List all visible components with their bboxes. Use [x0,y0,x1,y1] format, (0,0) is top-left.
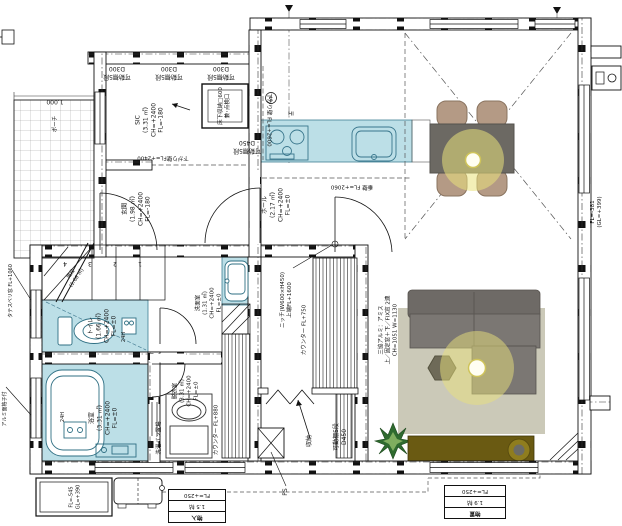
plant-icon [375,423,411,459]
floor-plan: 可動棚5段 D300 可動棚5段 D300 可動棚5段 D300 可動棚5段 D… [0,0,622,526]
window [31,290,41,338]
window [185,463,245,473]
window [31,378,41,438]
area-table-row: 物置 [445,508,505,518]
living-set [375,290,545,464]
ps-shaft [258,428,284,458]
porch-tile-grid [14,92,94,258]
counter-louver [313,258,357,388]
folding-door-icon [266,390,290,404]
area-table-right: 物置 1.9 帖 FL=+250 [444,485,506,519]
floor-hatch-box [202,84,248,128]
swing-arrow-icon [296,400,310,438]
folding-door-icon [290,390,314,404]
entrance-slab [36,478,112,516]
window [579,85,590,193]
utility-meter-icon [588,46,621,90]
door-arc [335,197,392,252]
under-stair-hatch [222,304,250,334]
outdoor-unit-icon [114,478,165,508]
washing-machine-icon [166,394,212,458]
window [430,20,518,29]
counter-louver [222,334,250,458]
area-table-row: 1.5 帖 [169,501,225,512]
bathtub-icon [46,370,104,456]
door-arc [160,308,196,344]
swing-arrow-icon [172,103,190,110]
area-table-row: 1.9 帖 [445,497,505,508]
door-arc [100,193,157,250]
pendant-light-icon [466,153,481,168]
washbasin-icon [225,261,248,301]
area-table-row: FL=+250 [169,490,225,501]
switch-mark-icon [266,93,277,104]
exterior-step-hatch [550,433,578,460]
counter-end [412,120,430,162]
pendant-light-icon [469,360,486,377]
window [430,463,538,473]
corner-flag-icon [0,30,14,44]
window [95,463,173,473]
speaker-icon [514,445,525,456]
window [300,20,346,29]
dining-set [430,101,514,196]
area-table-row: FL=+250 [445,486,505,497]
floorplan-drawing [0,0,622,526]
shelf [336,394,352,458]
window [535,20,575,29]
area-table-left: 物入 1.5 帖 FL=+250 [168,489,226,523]
window [95,92,105,144]
area-table-row: 物入 [169,512,225,522]
window [579,278,590,400]
